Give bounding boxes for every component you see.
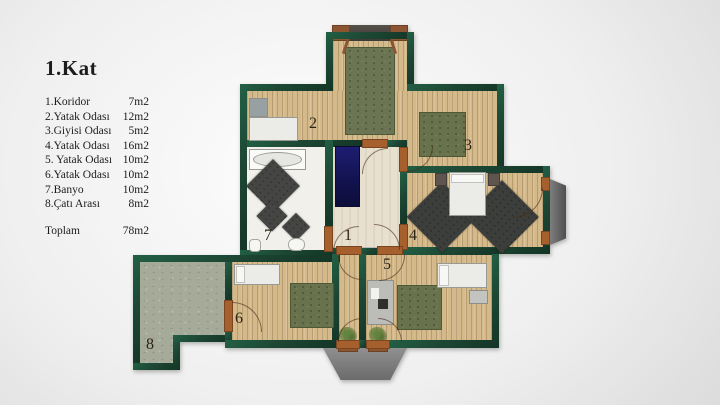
room-8-attic-floor: [140, 335, 173, 363]
sink: [249, 239, 261, 252]
wall: [407, 84, 504, 91]
dresser: [249, 98, 268, 117]
floorplan-page: 1.Kat 1.Koridor7m2 2.Yatak Odası12m2 3.G…: [0, 0, 720, 405]
toilet: [288, 238, 305, 251]
side-balcony: [550, 179, 566, 245]
wall: [225, 340, 336, 348]
door-frame: [362, 139, 388, 148]
nightstand: [488, 173, 500, 186]
bed-pillow: [451, 174, 484, 183]
wall: [240, 84, 247, 257]
nightstand: [469, 290, 488, 304]
room-8-attic-floor: [140, 262, 225, 335]
rug-navy: [335, 146, 360, 207]
room-number-7: 7: [264, 228, 272, 244]
room-number-3: 3: [464, 138, 472, 154]
room-number-5: 5: [383, 257, 391, 273]
nightstand: [435, 173, 447, 186]
bottom-balcony: [323, 348, 407, 380]
door-frame: [541, 231, 550, 245]
wall: [497, 84, 504, 173]
door-frame: [324, 226, 333, 252]
bed-pillow: [439, 265, 449, 286]
room-number-8: 8: [146, 337, 154, 353]
wall: [173, 335, 232, 342]
room-number-1: 1: [344, 228, 352, 244]
wall: [492, 254, 499, 348]
bed-pillow: [236, 266, 245, 283]
wall: [133, 255, 140, 370]
wall: [225, 262, 232, 300]
room-number-6: 6: [235, 311, 243, 327]
wall: [326, 32, 333, 91]
rug-green: [290, 283, 334, 328]
wall: [407, 32, 414, 91]
wall: [402, 248, 499, 255]
rug-green: [397, 285, 442, 330]
wall: [133, 255, 340, 262]
room-number-2: 2: [309, 116, 317, 132]
wardrobe: [249, 117, 298, 141]
wall: [390, 340, 499, 348]
room-number-4: 4: [409, 228, 417, 244]
bed-green: [345, 47, 395, 135]
wall: [325, 140, 333, 226]
wall: [388, 140, 407, 147]
wall: [326, 32, 414, 39]
wall: [240, 84, 332, 91]
desk-laptop: [378, 299, 388, 309]
floorplan: 1 2 3 4 5 6 7 8: [0, 0, 720, 405]
